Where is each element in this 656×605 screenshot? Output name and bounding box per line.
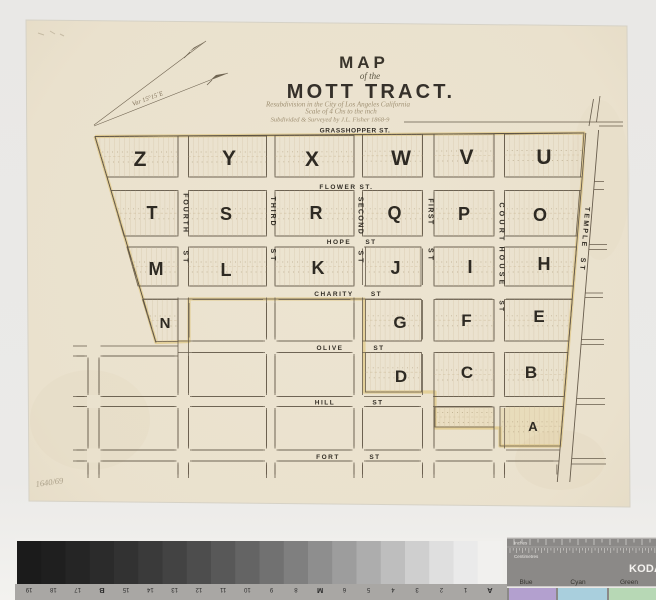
svg-text:OLIVE: OLIVE bbox=[316, 345, 343, 352]
svg-text:M: M bbox=[149, 259, 164, 279]
svg-text:19: 19 bbox=[25, 586, 32, 592]
svg-text:ST: ST bbox=[372, 400, 383, 407]
svg-text:M: M bbox=[317, 586, 323, 595]
svg-text:14: 14 bbox=[146, 586, 153, 592]
svg-text:Subdivided & Surveyed by J.L.: Subdivided & Surveyed by J.L. Fisher 186… bbox=[271, 117, 391, 124]
svg-text:O: O bbox=[533, 205, 547, 225]
svg-text:J: J bbox=[390, 258, 400, 278]
svg-text:V: V bbox=[459, 146, 473, 169]
svg-text:15: 15 bbox=[122, 586, 129, 592]
svg-text:KODAK: KODAK bbox=[629, 563, 656, 575]
svg-text:Centimetres: Centimetres bbox=[514, 554, 539, 559]
svg-text:N: N bbox=[160, 315, 171, 332]
svg-text:C: C bbox=[461, 363, 473, 382]
svg-text:T: T bbox=[147, 203, 158, 223]
svg-text:F: F bbox=[461, 311, 471, 330]
svg-text:I: I bbox=[467, 257, 472, 277]
svg-text:B: B bbox=[525, 363, 537, 382]
svg-text:ST: ST bbox=[373, 345, 384, 352]
svg-text:MAP: MAP bbox=[339, 53, 389, 72]
svg-text:A: A bbox=[528, 419, 538, 434]
svg-text:B: B bbox=[99, 586, 105, 595]
svg-text:11: 11 bbox=[219, 586, 226, 592]
svg-text:HOUSE: HOUSE bbox=[498, 247, 505, 288]
svg-text:ST.: ST. bbox=[360, 184, 374, 191]
svg-text:HILL: HILL bbox=[315, 400, 335, 407]
svg-text:X: X bbox=[305, 148, 319, 171]
svg-text:17: 17 bbox=[74, 586, 81, 592]
svg-text:ST: ST bbox=[182, 251, 189, 266]
svg-text:FLOWER: FLOWER bbox=[319, 184, 356, 191]
svg-text:ST: ST bbox=[365, 239, 376, 246]
svg-text:R: R bbox=[310, 203, 323, 223]
svg-text:D: D bbox=[395, 367, 407, 386]
svg-text:ST: ST bbox=[356, 251, 363, 266]
svg-text:W: W bbox=[391, 147, 411, 170]
svg-text:HOPE: HOPE bbox=[327, 239, 351, 246]
svg-text:P: P bbox=[458, 204, 470, 224]
svg-text:COURT: COURT bbox=[498, 203, 505, 244]
svg-text:GRASSHOPPER ST.: GRASSHOPPER ST. bbox=[320, 128, 391, 135]
svg-text:13: 13 bbox=[171, 586, 178, 592]
svg-text:FORT: FORT bbox=[316, 454, 340, 461]
svg-text:ST: ST bbox=[578, 257, 586, 273]
svg-text:SECOND: SECOND bbox=[356, 197, 363, 235]
svg-text:L: L bbox=[221, 260, 232, 280]
svg-text:ST: ST bbox=[371, 291, 382, 298]
svg-text:FIRST: FIRST bbox=[427, 198, 434, 225]
svg-text:of the: of the bbox=[360, 71, 380, 81]
svg-text:H: H bbox=[538, 254, 551, 274]
svg-text:Blue: Blue bbox=[519, 579, 532, 586]
svg-text:CHARITY: CHARITY bbox=[314, 291, 353, 298]
svg-text:U: U bbox=[536, 146, 551, 169]
svg-text:Green: Green bbox=[620, 579, 638, 586]
svg-text:Scale of 4 Chs to the inch: Scale of 4 Chs to the inch bbox=[305, 108, 377, 116]
svg-text:ST: ST bbox=[269, 249, 276, 264]
svg-text:Q: Q bbox=[387, 203, 401, 223]
svg-text:E: E bbox=[533, 307, 544, 326]
svg-text:ST: ST bbox=[369, 454, 380, 461]
svg-text:Y: Y bbox=[222, 147, 236, 170]
svg-text:S: S bbox=[220, 204, 232, 224]
svg-text:THIRD: THIRD bbox=[269, 197, 276, 228]
svg-text:G: G bbox=[393, 313, 406, 332]
svg-text:K: K bbox=[312, 258, 325, 278]
svg-text:12: 12 bbox=[195, 586, 202, 592]
svg-text:ST: ST bbox=[498, 300, 505, 313]
svg-text:Cyan: Cyan bbox=[570, 579, 586, 586]
svg-text:Inches: Inches bbox=[514, 541, 528, 546]
svg-text:FOURTH: FOURTH bbox=[182, 193, 189, 234]
svg-text:18: 18 bbox=[49, 586, 56, 592]
svg-text:Z: Z bbox=[134, 148, 147, 171]
svg-text:ST: ST bbox=[427, 248, 434, 263]
svg-text:10: 10 bbox=[243, 586, 250, 592]
svg-text:A: A bbox=[487, 586, 493, 595]
